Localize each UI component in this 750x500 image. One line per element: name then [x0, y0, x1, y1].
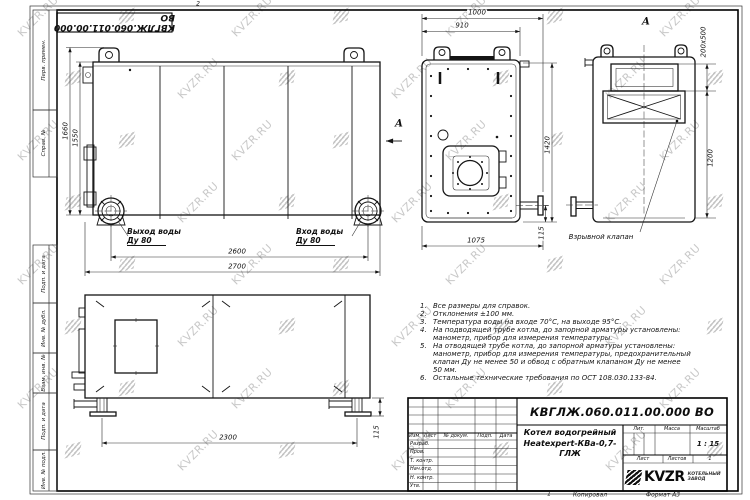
note-number: 3.	[416, 318, 433, 326]
pipe-label: Выход воды Ду 80	[127, 227, 181, 246]
zone-mark: 1	[547, 491, 551, 498]
note-number	[416, 350, 433, 358]
margin-label: Инв. № дубл.	[41, 309, 47, 347]
zone-mark: 2	[196, 1, 200, 8]
technical-notes: 1. Все размеры для справок. 2. Отклонени…	[416, 302, 700, 382]
note-text: манометр, прибор для измерения температу…	[433, 334, 700, 342]
title-block-cell: Лит.	[633, 426, 645, 432]
kvzr-logo-subtitle: КОТЕЛЬНЫЙ ЗАВОД	[688, 472, 721, 483]
note-text: 50 мм.	[433, 366, 700, 374]
product-name-line2: Heatexpert-КВа-0,7-ГЛЖ	[517, 439, 623, 460]
note-line: манометр, прибор для измерения температу…	[416, 334, 700, 342]
pipe-label-name: Вход воды	[296, 227, 343, 236]
title-block-cell: Масштаб	[696, 426, 720, 432]
note-number: 5.	[416, 342, 433, 350]
title-block-cell: Масса	[664, 426, 680, 432]
note-line: 1. Все размеры для справок.	[416, 302, 700, 310]
logo-sub-line2: ЗАВОД	[688, 477, 721, 483]
note-line: клапан Ду не менее 50 и обвод с обратным…	[416, 358, 700, 366]
margin-label: Справ. №	[41, 130, 47, 157]
dimension-label: 2600	[227, 249, 247, 256]
title-block-cell: Изм.	[409, 433, 421, 439]
note-number: 1.	[416, 302, 433, 310]
dimension-label: 115	[539, 225, 546, 240]
note-line: 3. Температура воды на входе 70°С, на вы…	[416, 318, 700, 326]
title-block-cell: Лист	[637, 456, 650, 462]
note-line: 50 мм.	[416, 366, 700, 374]
pipe-label-name: Выход воды	[127, 227, 181, 236]
title-block-product-name: Котел водогрейный Heatexpert-КВа-0,7-ГЛЖ	[517, 428, 623, 460]
note-line: 2. Отклонения ±100 мм.	[416, 310, 700, 318]
dimension-label: 910	[454, 23, 469, 30]
pipe-label: Вход воды Ду 80	[296, 227, 343, 246]
title-block-cell: 1	[708, 456, 711, 462]
note-text: На отводящей трубе котла, до запорной ар…	[433, 342, 700, 350]
title-block-row-label: Пров.	[410, 449, 425, 455]
kvzr-logo-word: KVZR	[644, 469, 685, 485]
note-text: манометр, прибор для измерения температу…	[433, 350, 700, 358]
dimension-label: 1550	[73, 128, 80, 148]
note-number: 4.	[416, 326, 433, 334]
view-label: А	[395, 119, 403, 130]
dimension-label: 1200	[708, 148, 715, 168]
title-block-cell: № докум.	[444, 433, 469, 439]
note-line: 5. На отводящей трубе котла, до запорной…	[416, 342, 700, 350]
note-number: 6.	[416, 374, 433, 382]
note-text: клапан Ду не менее 50 и обвод с обратным…	[433, 358, 700, 366]
dimension-label: 115	[374, 424, 381, 439]
margin-label: Подп. и дата	[41, 402, 47, 439]
note-text: Остальные технические требования по ОСТ …	[433, 374, 700, 382]
title-block-cell: Лист	[424, 433, 437, 439]
dimension-label: 2700	[227, 264, 247, 271]
dimension-label: 1660	[63, 121, 70, 141]
margin-label: Подп. и дата	[41, 255, 47, 292]
kvzr-logo-icon	[624, 470, 642, 485]
footer-copied-label: Копировал	[573, 492, 607, 499]
view-label: Взрывной клапан	[569, 233, 634, 241]
margin-label: Перв. примен.	[41, 39, 47, 80]
dimension-label: 1075	[466, 238, 486, 245]
note-number	[416, 358, 433, 366]
note-number	[416, 366, 433, 374]
footer-format-label: Формат А3	[646, 492, 680, 499]
title-block-doc-number: КВГЛЖ.060.011.00.000 ВО	[517, 398, 727, 425]
title-block-row-label: Т. контр.	[410, 458, 433, 464]
dimension-label: 1420	[545, 135, 552, 155]
dimension-label: 2300	[218, 435, 238, 442]
note-number: 2.	[416, 310, 433, 318]
note-text: Отклонения ±100 мм.	[433, 310, 700, 318]
note-line: 6. Остальные технические требования по О…	[416, 374, 700, 382]
title-block-cell: Дата	[500, 433, 513, 439]
note-number	[416, 334, 433, 342]
dimension-label: 200x500	[701, 26, 708, 59]
pipe-label-dn: Ду 80	[296, 236, 335, 246]
note-text: Все размеры для справок.	[433, 302, 700, 310]
margin-label: Взам. инв. №	[41, 354, 47, 391]
product-name-line1: Котел водогрейный	[517, 428, 623, 439]
top-stamp-doc-number: КВГЛЖ.060.011.00.000 ВО	[57, 13, 172, 32]
note-text: На подводящей трубе котла, до запорной а…	[433, 326, 700, 334]
dimension-label: 1000	[467, 10, 487, 17]
kvzr-logo: KVZR КОТЕЛЬНЫЙ ЗАВОД	[626, 465, 726, 489]
title-block-row-label: Утв.	[410, 483, 421, 489]
title-block-cell: Листов	[668, 456, 687, 462]
note-line: манометр, прибор для измерения температу…	[416, 350, 700, 358]
title-block-cell: 1 : 15	[697, 440, 719, 448]
title-block-row-label: Нач.отд.	[410, 466, 432, 472]
margin-label: Инв. № подл.	[41, 451, 47, 489]
title-block-row-label: Разраб.	[410, 441, 430, 447]
pipe-label-dn: Ду 80	[127, 236, 166, 246]
note-line: 4. На подводящей трубе котла, до запорно…	[416, 326, 700, 334]
note-text: Температура воды на входе 70°С, на выход…	[433, 318, 700, 326]
view-label: А	[642, 17, 650, 28]
drawing-sheet: KVZR.RUKVZR.RUKVZR.RUKVZR.RUKVZR.RUKVZR.…	[0, 0, 750, 500]
title-block-cell: Подп.	[477, 433, 492, 439]
title-block-row-label: Н. контр.	[410, 475, 434, 481]
